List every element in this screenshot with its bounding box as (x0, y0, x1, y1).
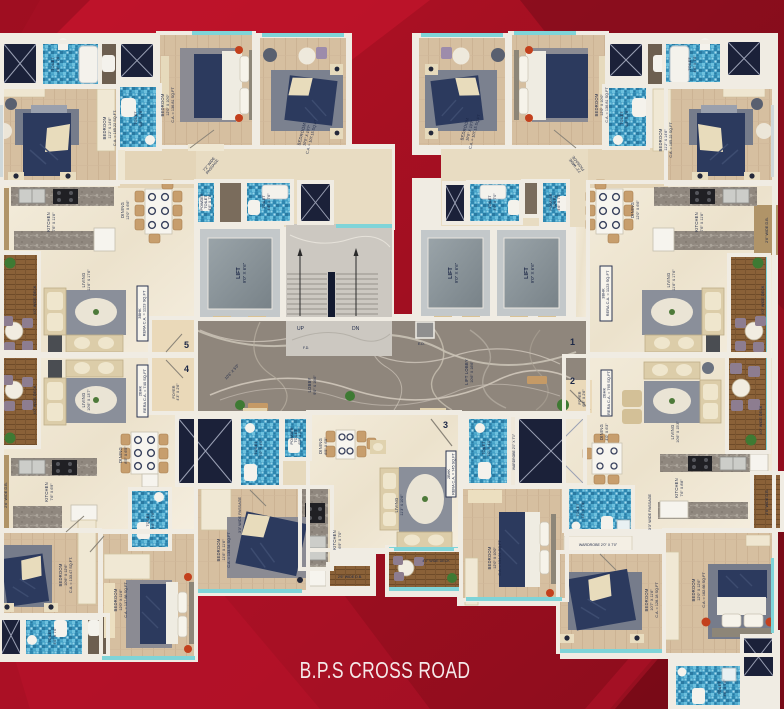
svg-text:11'3" X 10'6": 11'3" X 10'6" (400, 494, 404, 516)
svg-text:5: 5 (184, 340, 189, 350)
svg-text:4'0" X 7'0": 4'0" X 7'0" (493, 193, 497, 211)
svg-text:4'3" X 2'6": 4'3" X 2'6" (176, 383, 180, 401)
svg-text:12'0" X 12'6": 12'0" X 12'6" (697, 579, 701, 601)
svg-text:TOILET: TOILET (48, 629, 52, 643)
svg-text:4'6" X 7'6": 4'6" X 7'6" (557, 193, 561, 211)
svg-text:4'6" X 7'6": 4'6" X 7'6" (53, 627, 57, 645)
svg-text:6'3" X 2'6": 6'3" X 2'6" (582, 389, 586, 407)
svg-text:KITCHEN: KITCHEN (674, 478, 679, 498)
svg-text:RERA C.A. = 745 SQ.FT: RERA C.A. = 745 SQ.FT (452, 452, 456, 494)
svg-text:4'6" X 7'6": 4'6" X 7'6" (267, 193, 271, 211)
svg-text:9'0" X 6'6": 9'0" X 6'6" (454, 262, 459, 283)
svg-text:UP: UP (297, 326, 305, 332)
svg-text:TOILET: TOILET (254, 441, 258, 455)
svg-text:LIVING: LIVING (81, 393, 86, 408)
svg-text:BEDROOM: BEDROOM (658, 128, 663, 151)
svg-text:BEDROOM: BEDROOM (58, 563, 63, 586)
svg-text:TOILET: TOILET (51, 57, 55, 71)
svg-text:7'6" X 11'6": 7'6" X 11'6" (52, 212, 56, 232)
svg-text:7'6" X 6'9": 7'6" X 6'9" (50, 483, 54, 501)
svg-text:2'6" WIDE D.B.: 2'6" WIDE D.B. (765, 489, 769, 515)
svg-text:8'5" X 6'5": 8'5" X 6'5" (324, 437, 328, 455)
svg-text:BEDROOM: BEDROOM (691, 578, 696, 601)
svg-text:6'9" X 7'0": 6'9" X 7'0" (338, 531, 342, 549)
svg-text:BEDROOM: BEDROOM (102, 116, 107, 139)
svg-text:BEDROOM: BEDROOM (487, 546, 492, 569)
svg-text:C.A. = 136.81 SQ.FT: C.A. = 136.81 SQ.FT (171, 87, 175, 123)
svg-text:6'9" X 7'6": 6'9" X 7'6" (625, 109, 629, 127)
svg-text:10'6" X 12'6": 10'6" X 12'6" (64, 564, 68, 586)
svg-text:WARDROBE 2'0" X 7'0": WARDROBE 2'0" X 7'0" (512, 433, 516, 470)
svg-text:LIVING: LIVING (670, 425, 675, 440)
svg-text:4'6" X 7'6": 4'6" X 7'6" (151, 511, 155, 529)
svg-text:LIVING: LIVING (81, 273, 86, 288)
svg-text:11'2" X 14'6": 11'2" X 14'6" (664, 129, 668, 151)
svg-text:12'0" X 6'6": 12'0" X 6'6" (126, 200, 130, 220)
svg-text:4'6" X 7'6": 4'6" X 7'6" (208, 193, 212, 211)
svg-text:TOILET: TOILET (488, 195, 492, 209)
svg-text:C.A. = 133.47 SQ.FT.: C.A. = 133.47 SQ.FT. (69, 557, 73, 593)
svg-text:BEDROOM: BEDROOM (216, 538, 221, 561)
svg-text:BEDROOM: BEDROOM (594, 93, 599, 116)
svg-text:TOILET: TOILET (146, 513, 150, 527)
svg-text:TOILET: TOILET (688, 57, 692, 71)
svg-text:DINING: DINING (118, 447, 123, 463)
svg-text:TOILET: TOILET (134, 111, 138, 125)
svg-text:6'9" X 7'6": 6'9" X 7'6" (139, 109, 143, 127)
svg-text:BEDROOM: BEDROOM (644, 588, 649, 611)
svg-text:11'6" X 17'6": 11'6" X 17'6" (87, 269, 91, 291)
svg-text:7'0" X 4'0": 7'0" X 4'0" (259, 439, 263, 457)
svg-text:2: 2 (570, 376, 575, 386)
svg-text:RERA C.A. = 1123 SQ.FT: RERA C.A. = 1123 SQ.FT (142, 290, 147, 336)
svg-text:TOILET: TOILET (576, 503, 580, 517)
svg-text:BEDROOM: BEDROOM (160, 93, 165, 116)
svg-text:3'3" WIDE PASSAGE: 3'3" WIDE PASSAGE (238, 496, 242, 533)
svg-text:7'0" X 4'0": 7'0" X 4'0" (487, 439, 491, 457)
svg-text:B.P.S CROSS ROAD: B.P.S CROSS ROAD (300, 659, 471, 684)
svg-text:C.A. = 136.81 SQ.FT: C.A. = 136.81 SQ.FT (605, 87, 609, 123)
svg-text:3: 3 (443, 420, 448, 430)
svg-text:TOILET: TOILET (620, 111, 624, 125)
svg-text:7'6" X 11'6": 7'6" X 11'6" (700, 212, 704, 232)
svg-text:12'0" X 6'6": 12'0" X 6'6" (636, 200, 640, 220)
svg-text:DINING: DINING (599, 424, 604, 440)
svg-text:2BHK: 2BHK (447, 469, 451, 479)
svg-text:LOBBY: LOBBY (307, 378, 312, 393)
svg-text:2'6" WIDE D.B.: 2'6" WIDE D.B. (4, 482, 8, 508)
svg-text:10'7" X 11'6": 10'7" X 11'6" (650, 589, 654, 611)
svg-text:4'6" X 7'6": 4'6" X 7'6" (693, 55, 697, 73)
svg-text:6'5" X 3'0": 6'5" X 3'0" (298, 427, 302, 445)
svg-text:4: 4 (184, 364, 189, 374)
svg-text:12'0" X 10'0": 12'0" X 10'0" (493, 547, 497, 569)
svg-text:TOILET: TOILET (718, 681, 722, 695)
svg-text:4'6" X 7'6": 4'6" X 7'6" (723, 679, 727, 697)
svg-text:F.D.: F.D. (303, 346, 309, 350)
svg-text:KITCHEN: KITCHEN (694, 212, 699, 232)
svg-text:10'6" X 16'6": 10'6" X 16'6" (470, 361, 474, 383)
svg-text:4'0" WIDE DECK: 4'0" WIDE DECK (759, 405, 763, 434)
svg-text:LIVING: LIVING (666, 273, 671, 288)
svg-text:C.A. = 165.22 SQ.FT.: C.A. = 165.22 SQ.FT. (113, 110, 117, 146)
svg-text:RERA C.A. = 740 SQ.FT: RERA C.A. = 740 SQ.FT (142, 368, 147, 412)
svg-text:2'6" WIDE D.B.: 2'6" WIDE D.B. (765, 217, 769, 243)
svg-text:9'0" X 6'6": 9'0" X 6'6" (530, 262, 535, 283)
svg-text:4'6" X 7'6": 4'6" X 7'6" (56, 55, 60, 73)
svg-text:DINING: DINING (120, 202, 125, 218)
svg-text:4'0" WIDE DECK: 4'0" WIDE DECK (33, 285, 37, 314)
svg-text:12'0" X 10'0": 12'0" X 10'0" (166, 94, 170, 116)
svg-text:C.A. = 134.01 SQ.FT: C.A. = 134.01 SQ.FT (498, 540, 502, 576)
svg-text:KITCHEN: KITCHEN (44, 482, 49, 502)
svg-text:DINING: DINING (318, 438, 323, 454)
svg-text:4'0" WIDE DECK: 4'0" WIDE DECK (422, 559, 450, 563)
svg-text:RERA C.A. = 1123 SQ.FT: RERA C.A. = 1123 SQ.FT (605, 270, 610, 316)
svg-text:TOILET: TOILET (262, 195, 266, 209)
svg-text:10'6" X 15'3": 10'6" X 15'3" (676, 421, 680, 443)
svg-text:8'5" X 6'5": 8'5" X 6'5" (124, 446, 128, 464)
svg-text:12'0" X 10'0": 12'0" X 10'0" (600, 94, 604, 116)
svg-text:2'6" WIDE D.B.: 2'6" WIDE D.B. (338, 575, 362, 579)
svg-text:4'6" X 7'6": 4'6" X 7'6" (581, 501, 585, 519)
svg-text:4'0" WIDE DECK: 4'0" WIDE DECK (33, 385, 37, 414)
svg-text:BEDROOM: BEDROOM (113, 588, 118, 611)
svg-text:C.A. = 128.18 SQ.FT: C.A. = 128.18 SQ.FT (655, 582, 659, 618)
svg-text:E.D.: E.D. (418, 342, 425, 346)
svg-text:WARDROBE 2'0" X 7'0": WARDROBE 2'0" X 7'0" (579, 543, 618, 547)
svg-text:4'0" WIDE DECK: 4'0" WIDE DECK (761, 285, 765, 314)
svg-text:9'0" X 6'6": 9'0" X 6'6" (242, 262, 247, 283)
svg-text:3'3" WIDE PASSAGE: 3'3" WIDE PASSAGE (648, 493, 652, 530)
svg-text:4'0" X 6'3": 4'0" X 6'3" (605, 423, 609, 441)
svg-text:LIFT LOBBY: LIFT LOBBY (464, 359, 469, 385)
svg-text:9'0" X 16'6": 9'0" X 16'6" (313, 375, 317, 395)
svg-text:RERA C.A. = 765 SQ.FT: RERA C.A. = 765 SQ.FT (606, 370, 611, 414)
svg-text:1: 1 (570, 337, 575, 347)
svg-text:KITCHEN: KITCHEN (332, 530, 337, 550)
svg-text:12'0" X 11'6": 12'0" X 11'6" (119, 589, 123, 611)
svg-text:TOILET: TOILET (482, 441, 486, 455)
svg-text:C.A. = 165.22 SQ.FT: C.A. = 165.22 SQ.FT (669, 122, 673, 158)
svg-text:DINING: DINING (630, 202, 635, 218)
svg-text:KITCHEN: KITCHEN (46, 212, 51, 232)
svg-text:11'2" X 14'6": 11'2" X 14'6" (108, 117, 112, 139)
svg-text:10'6" X 13'7": 10'6" X 13'7" (87, 389, 91, 411)
svg-text:11'6" X 11'6": 11'6" X 11'6" (222, 539, 226, 561)
svg-text:DN: DN (352, 326, 360, 332)
svg-text:C.A. = 137.88 SQ.FT: C.A. = 137.88 SQ.FT (124, 582, 128, 618)
svg-text:C.A. = 162.66 SQ.FT: C.A. = 162.66 SQ.FT (702, 572, 706, 608)
svg-text:7'6" X 8'8": 7'6" X 8'8" (680, 479, 684, 497)
svg-text:11'6" X 17'6": 11'6" X 17'6" (672, 269, 676, 291)
svg-text:C.A. = 133.54 SQ.FT: C.A. = 133.54 SQ.FT (227, 532, 231, 568)
svg-text:LIVING: LIVING (394, 498, 399, 513)
